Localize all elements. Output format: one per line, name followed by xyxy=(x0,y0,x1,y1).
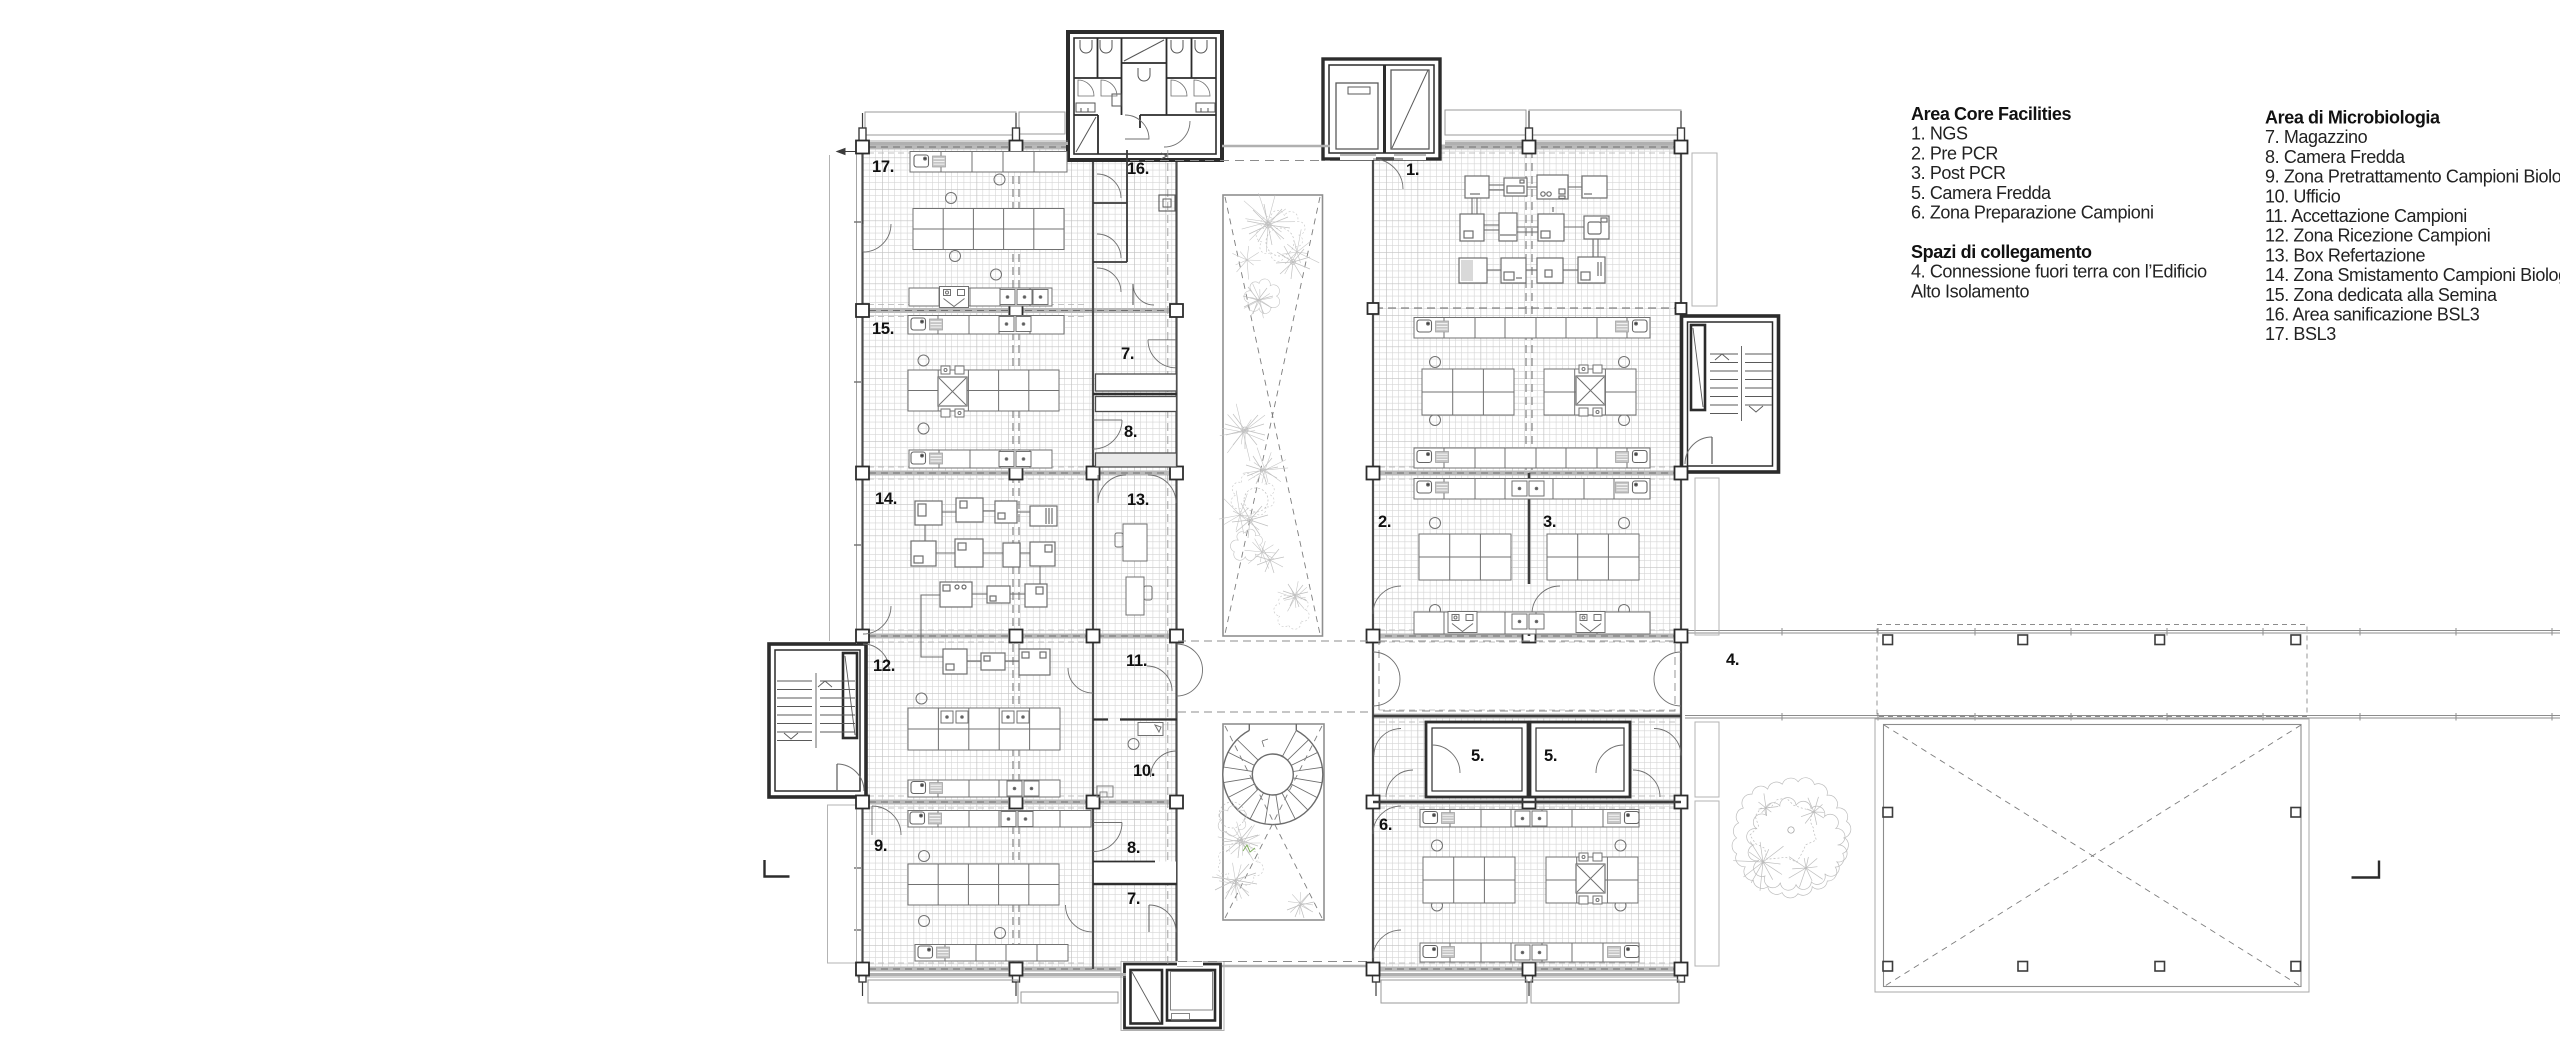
svg-text:7. Magazzino: 7. Magazzino xyxy=(2265,127,2368,147)
svg-text:Area di Microbiologia: Area di Microbiologia xyxy=(2265,108,2441,128)
svg-text:14.: 14. xyxy=(875,490,897,508)
svg-text:1.: 1. xyxy=(1406,161,1419,179)
svg-text:Area Core Facilities: Area Core Facilities xyxy=(1911,104,2071,124)
svg-text:12. Zona Ricezione Campioni: 12. Zona Ricezione Campioni xyxy=(2265,226,2490,246)
svg-text:Alto Isolamento: Alto Isolamento xyxy=(1911,281,2029,301)
svg-text:15. Zona dedicata alla Semina: 15. Zona dedicata alla Semina xyxy=(2265,285,2498,305)
svg-text:16.: 16. xyxy=(1127,160,1149,178)
svg-text:8.: 8. xyxy=(1127,839,1140,857)
svg-text:8. Camera Fredda: 8. Camera Fredda xyxy=(2265,147,2406,167)
svg-text:15.: 15. xyxy=(872,320,894,338)
svg-text:9.: 9. xyxy=(874,837,887,855)
svg-text:9. Zona Pretrattamento Campion: 9. Zona Pretrattamento Campioni Biologic… xyxy=(2265,167,2560,187)
svg-text:1. NGS: 1. NGS xyxy=(1911,124,1968,144)
svg-text:7.: 7. xyxy=(1121,345,1134,363)
svg-text:5.: 5. xyxy=(1544,747,1557,765)
svg-text:10. Ufficio: 10. Ufficio xyxy=(2265,186,2341,206)
svg-text:8.: 8. xyxy=(1124,423,1137,441)
svg-text:12.: 12. xyxy=(873,657,895,675)
svg-text:5.: 5. xyxy=(1471,747,1484,765)
svg-text:13. Box Refertazione: 13. Box Refertazione xyxy=(2265,245,2425,265)
svg-text:6.: 6. xyxy=(1379,816,1392,834)
svg-text:7.: 7. xyxy=(1127,890,1140,908)
svg-text:17. BSL3: 17. BSL3 xyxy=(2265,324,2336,344)
svg-text:14. Zona Smistamento Campioni: 14. Zona Smistamento Campioni Biologici xyxy=(2265,265,2560,285)
svg-text:5. Camera Fredda: 5. Camera Fredda xyxy=(1911,183,2052,203)
svg-text:2.: 2. xyxy=(1378,513,1391,531)
svg-text:17.: 17. xyxy=(872,158,894,176)
svg-text:4.: 4. xyxy=(1726,651,1739,669)
svg-text:6. Zona Preparazione Campioni: 6. Zona Preparazione Campioni xyxy=(1911,203,2154,223)
svg-text:2. Pre PCR: 2. Pre PCR xyxy=(1911,143,1998,163)
svg-text:10.: 10. xyxy=(1133,762,1155,780)
svg-text:Spazi di collegamento: Spazi di collegamento xyxy=(1911,242,2092,262)
svg-text:13.: 13. xyxy=(1127,491,1149,509)
svg-text:4. Connessione fuori terra con: 4. Connessione fuori terra con l’Edifici… xyxy=(1911,262,2207,282)
svg-text:16. Area sanificazione BSL3: 16. Area sanificazione BSL3 xyxy=(2265,305,2480,325)
svg-text:11.: 11. xyxy=(1126,652,1147,670)
svg-text:3.: 3. xyxy=(1543,513,1556,531)
svg-text:11. Accettazione Campioni: 11. Accettazione Campioni xyxy=(2265,206,2467,226)
svg-text:3. Post PCR: 3. Post PCR xyxy=(1911,163,2006,183)
